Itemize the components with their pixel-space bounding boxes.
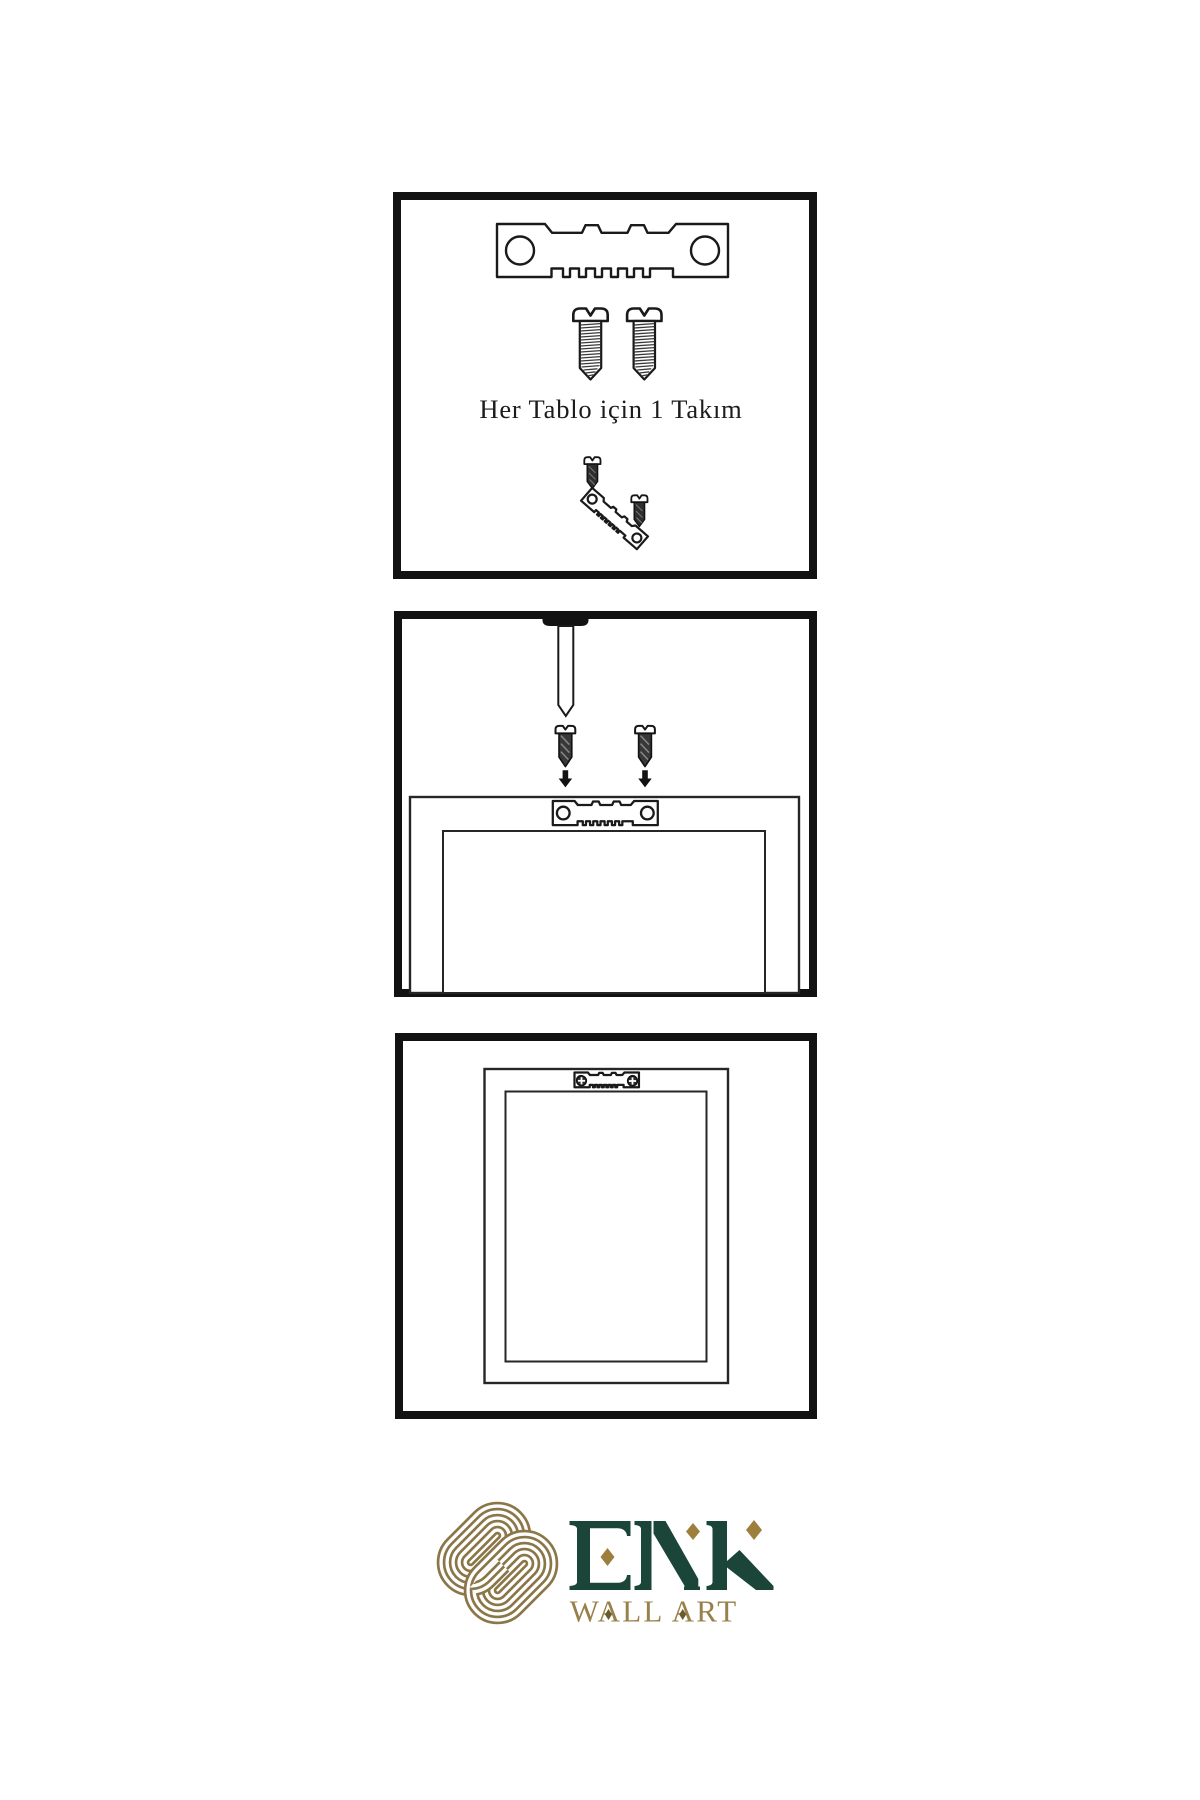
svg-text:WALL ART: WALL ART [570,1594,739,1629]
svg-text:Her Tablo için 1 Takım: Her Tablo için 1 Takım [479,394,742,424]
